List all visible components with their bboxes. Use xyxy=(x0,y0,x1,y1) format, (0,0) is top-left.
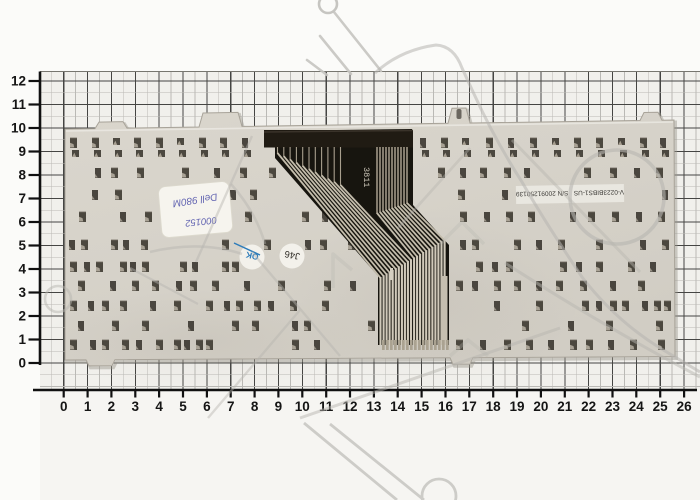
svg-text:21: 21 xyxy=(557,399,573,414)
svg-text:23: 23 xyxy=(605,399,621,414)
svg-text:5: 5 xyxy=(18,238,26,253)
svg-text:9: 9 xyxy=(18,144,26,159)
svg-text:2: 2 xyxy=(18,309,26,324)
svg-text:10: 10 xyxy=(295,399,310,414)
svg-text:25: 25 xyxy=(653,399,669,414)
svg-text:8: 8 xyxy=(18,168,26,183)
svg-text:3811: 3811 xyxy=(361,167,371,187)
svg-text:6: 6 xyxy=(203,399,211,414)
svg-text:18: 18 xyxy=(486,399,502,414)
svg-text:12: 12 xyxy=(11,74,26,89)
svg-text:7: 7 xyxy=(227,399,235,414)
svg-text:6: 6 xyxy=(18,215,26,230)
svg-text:10: 10 xyxy=(11,121,26,136)
svg-text:8: 8 xyxy=(251,399,259,414)
svg-text:13: 13 xyxy=(366,399,382,414)
svg-text:26: 26 xyxy=(677,399,693,414)
svg-text:0: 0 xyxy=(60,399,68,414)
svg-text:7: 7 xyxy=(18,191,26,206)
svg-text:24: 24 xyxy=(629,399,645,414)
svg-text:5: 5 xyxy=(179,399,187,414)
svg-text:11: 11 xyxy=(12,97,27,112)
svg-text:22: 22 xyxy=(581,399,596,414)
svg-text:1: 1 xyxy=(18,332,26,347)
svg-text:17: 17 xyxy=(462,399,477,414)
svg-text:1: 1 xyxy=(84,399,92,414)
svg-text:16: 16 xyxy=(438,399,454,414)
svg-text:3: 3 xyxy=(132,399,140,414)
svg-text:9: 9 xyxy=(275,399,283,414)
svg-text:4: 4 xyxy=(155,399,163,414)
svg-text:14: 14 xyxy=(390,399,406,414)
svg-text:0: 0 xyxy=(18,356,26,371)
svg-text:15: 15 xyxy=(414,399,430,414)
svg-text:19: 19 xyxy=(509,399,524,414)
svg-text:2: 2 xyxy=(108,399,116,414)
svg-text:20: 20 xyxy=(533,399,548,414)
svg-text:4: 4 xyxy=(18,262,26,277)
svg-text:3: 3 xyxy=(18,285,26,300)
